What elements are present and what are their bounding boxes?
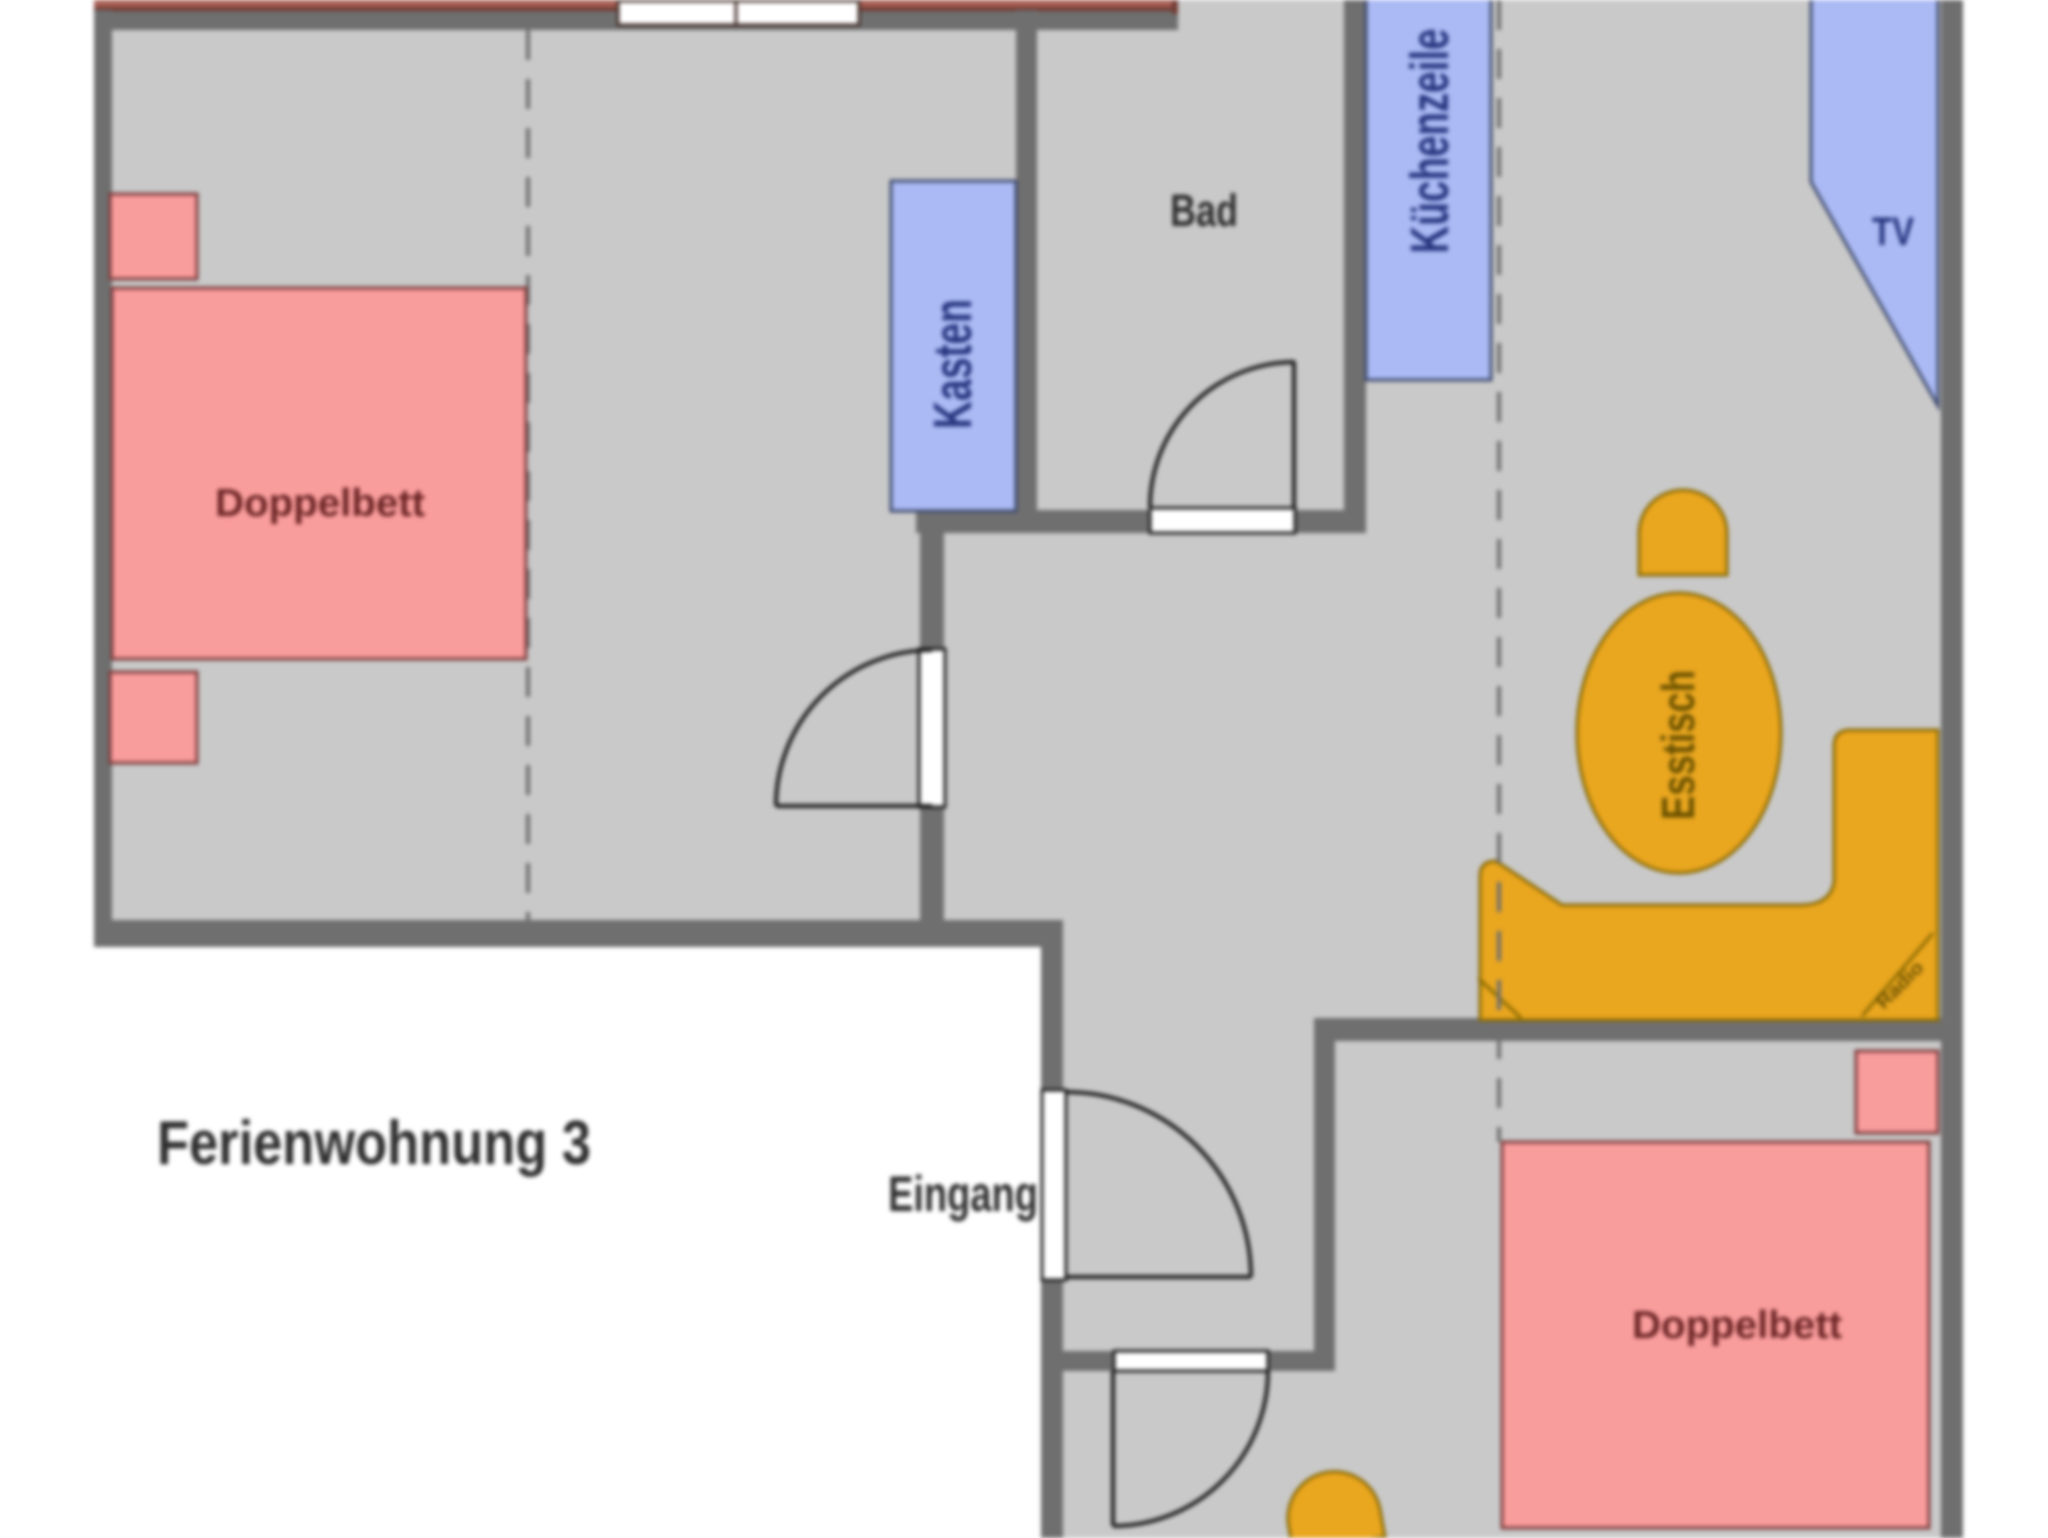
svg-text:Eingang: Eingang [888,1166,1038,1222]
svg-text:Doppelbett: Doppelbett [215,482,425,525]
svg-text:Küchenzeile: Küchenzeile [1400,29,1460,254]
svg-text:Doppelbett: Doppelbett [1632,1304,1842,1347]
svg-text:Ferienwohnung 3: Ferienwohnung 3 [157,1109,591,1178]
svg-text:Bad: Bad [1170,185,1238,236]
svg-text:Esstisch: Esstisch [1652,670,1704,820]
svg-text:TV: TV [1872,210,1914,254]
svg-text:Kasten: Kasten [923,299,983,429]
